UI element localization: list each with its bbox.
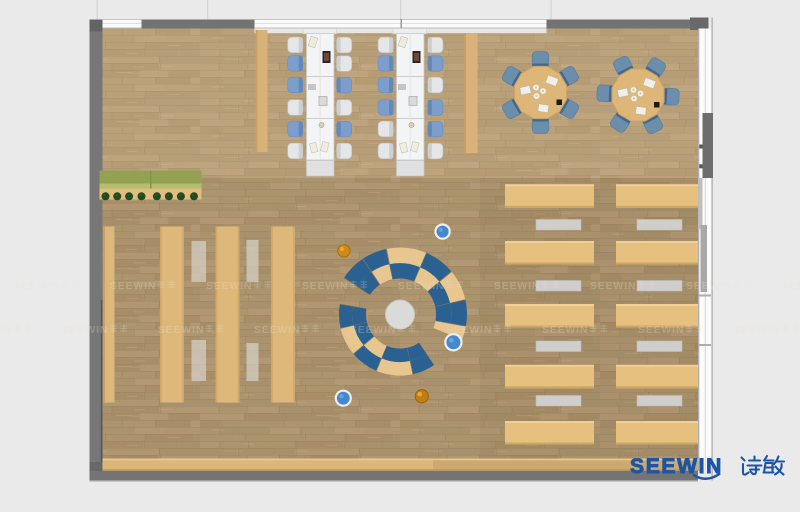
svg-text:SEEWIN: SEEWIN (630, 455, 723, 478)
